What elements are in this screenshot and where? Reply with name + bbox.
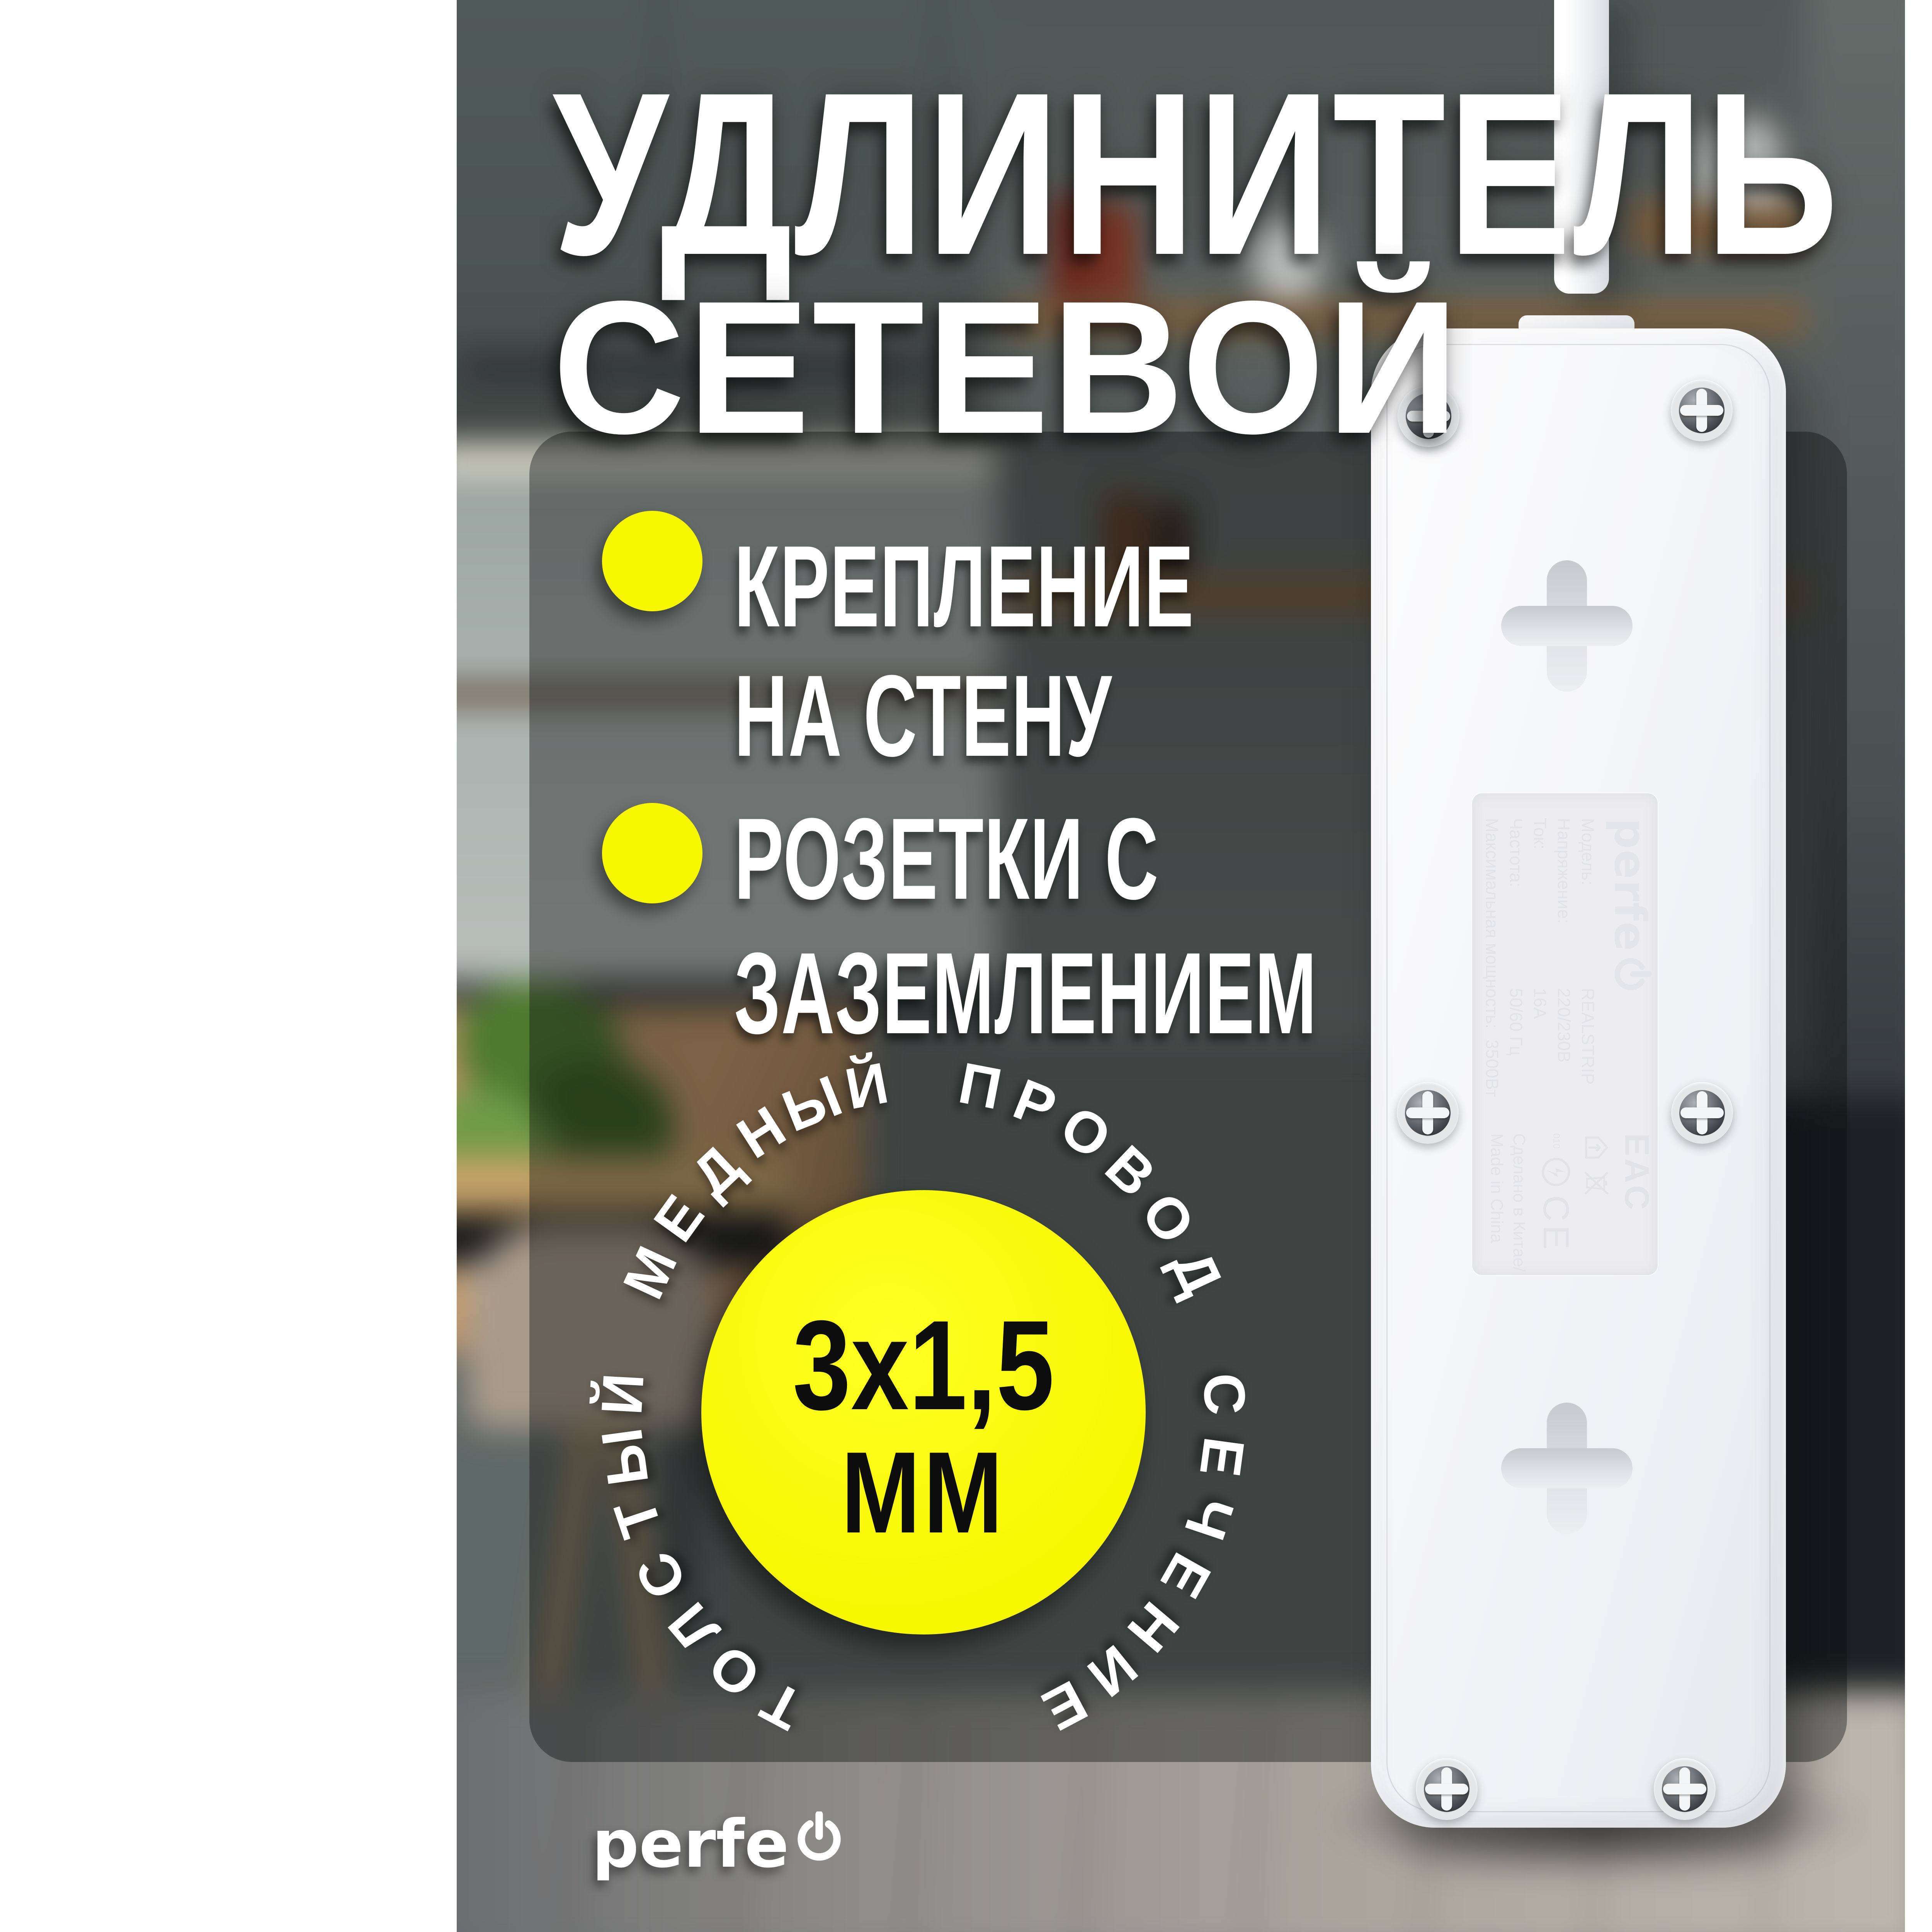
eac-mark-icon: EAC	[1620, 1133, 1654, 1272]
house-arrow-icon	[1583, 1133, 1611, 1162]
crossed-bin-icon	[1583, 1169, 1611, 1197]
badge-value: 3x1,5	[607, 1301, 1240, 1429]
screw-icon	[1671, 1082, 1733, 1144]
rst-number: 010	[1551, 1133, 1561, 1149]
spec-name: Ток:	[1528, 818, 1552, 988]
spec-value: 50/60 Гц	[1506, 988, 1526, 1056]
spec-name: Модель:	[1576, 818, 1600, 988]
feature-1-line1: КРЕПЛЕНИЕ	[734, 522, 1194, 651]
spec-row: Ток:16А	[1528, 818, 1552, 1097]
feature-1-line2: НА СТЕНУ	[734, 651, 1112, 781]
device-spec-label-content: perfe Модель:REALSTRIP Напряжение:220/23…	[1472, 793, 1658, 1275]
feature-2-line1: РОЗЕТКИ С	[734, 794, 1159, 923]
power-icon	[794, 1811, 844, 1861]
feature-2-line2: ЗАЗЕМЛЕНИЕМ	[734, 929, 1317, 1058]
bullet-dot-icon	[602, 511, 702, 611]
brand-logo: perfe	[592, 1811, 844, 1877]
spec-value: 16А	[1530, 988, 1550, 1019]
spec-value: REALSTRIP	[1578, 988, 1598, 1085]
device-spec-label: perfe Модель:REALSTRIP Напряжение:220/23…	[1472, 793, 1658, 1275]
bullet-dot-icon	[602, 803, 702, 903]
label-brand-wordmark: perfe	[1608, 818, 1651, 952]
spec-value: 3500Вт	[1482, 1039, 1502, 1097]
rostest-icon	[1540, 1156, 1572, 1188]
spec-row: Частота:50/60 Гц	[1504, 818, 1528, 1097]
made-in-text: Сделано в Китае/ Made in China	[1485, 1133, 1530, 1272]
spec-name: Частота:	[1504, 818, 1528, 988]
page-title-line2: СЕТЕВОЙ	[553, 272, 1461, 462]
ce-mark-icon: CE	[1538, 1195, 1574, 1253]
screw-icon	[1397, 1082, 1459, 1144]
screw-icon	[1671, 379, 1733, 441]
spec-row: Максимальная мощность:3500Вт	[1480, 818, 1504, 1097]
page-title-line1: УДЛИНИТЕЛЬ	[553, 58, 1840, 290]
power-icon	[1614, 956, 1651, 993]
label-brand-logo: perfe	[1608, 818, 1651, 993]
spec-row: Модель:REALSTRIP	[1576, 818, 1600, 1097]
brand-wordmark: perfe	[592, 1811, 789, 1877]
spec-name: Напряжение:	[1552, 818, 1576, 988]
badge-unit: ММ	[607, 1434, 1240, 1550]
spec-value: 220/230В	[1554, 988, 1574, 1063]
spec-row: Напряжение:220/230В	[1552, 818, 1576, 1097]
spec-name: Максимальная мощность:	[1480, 818, 1504, 1039]
product-poster: perfe Модель:REALSTRIP Напряжение:220/23…	[0, 0, 1932, 1932]
wall-mount-hole-icon	[1497, 556, 1636, 696]
certification-marks: EAC 010 C	[1538, 1133, 1654, 1272]
spec-rows: Модель:REALSTRIP Напряжение:220/230В Ток…	[1480, 818, 1600, 1097]
screw-icon	[1654, 1758, 1716, 1820]
screw-icon	[1416, 1758, 1478, 1820]
wall-mount-hole-icon	[1497, 1399, 1636, 1538]
